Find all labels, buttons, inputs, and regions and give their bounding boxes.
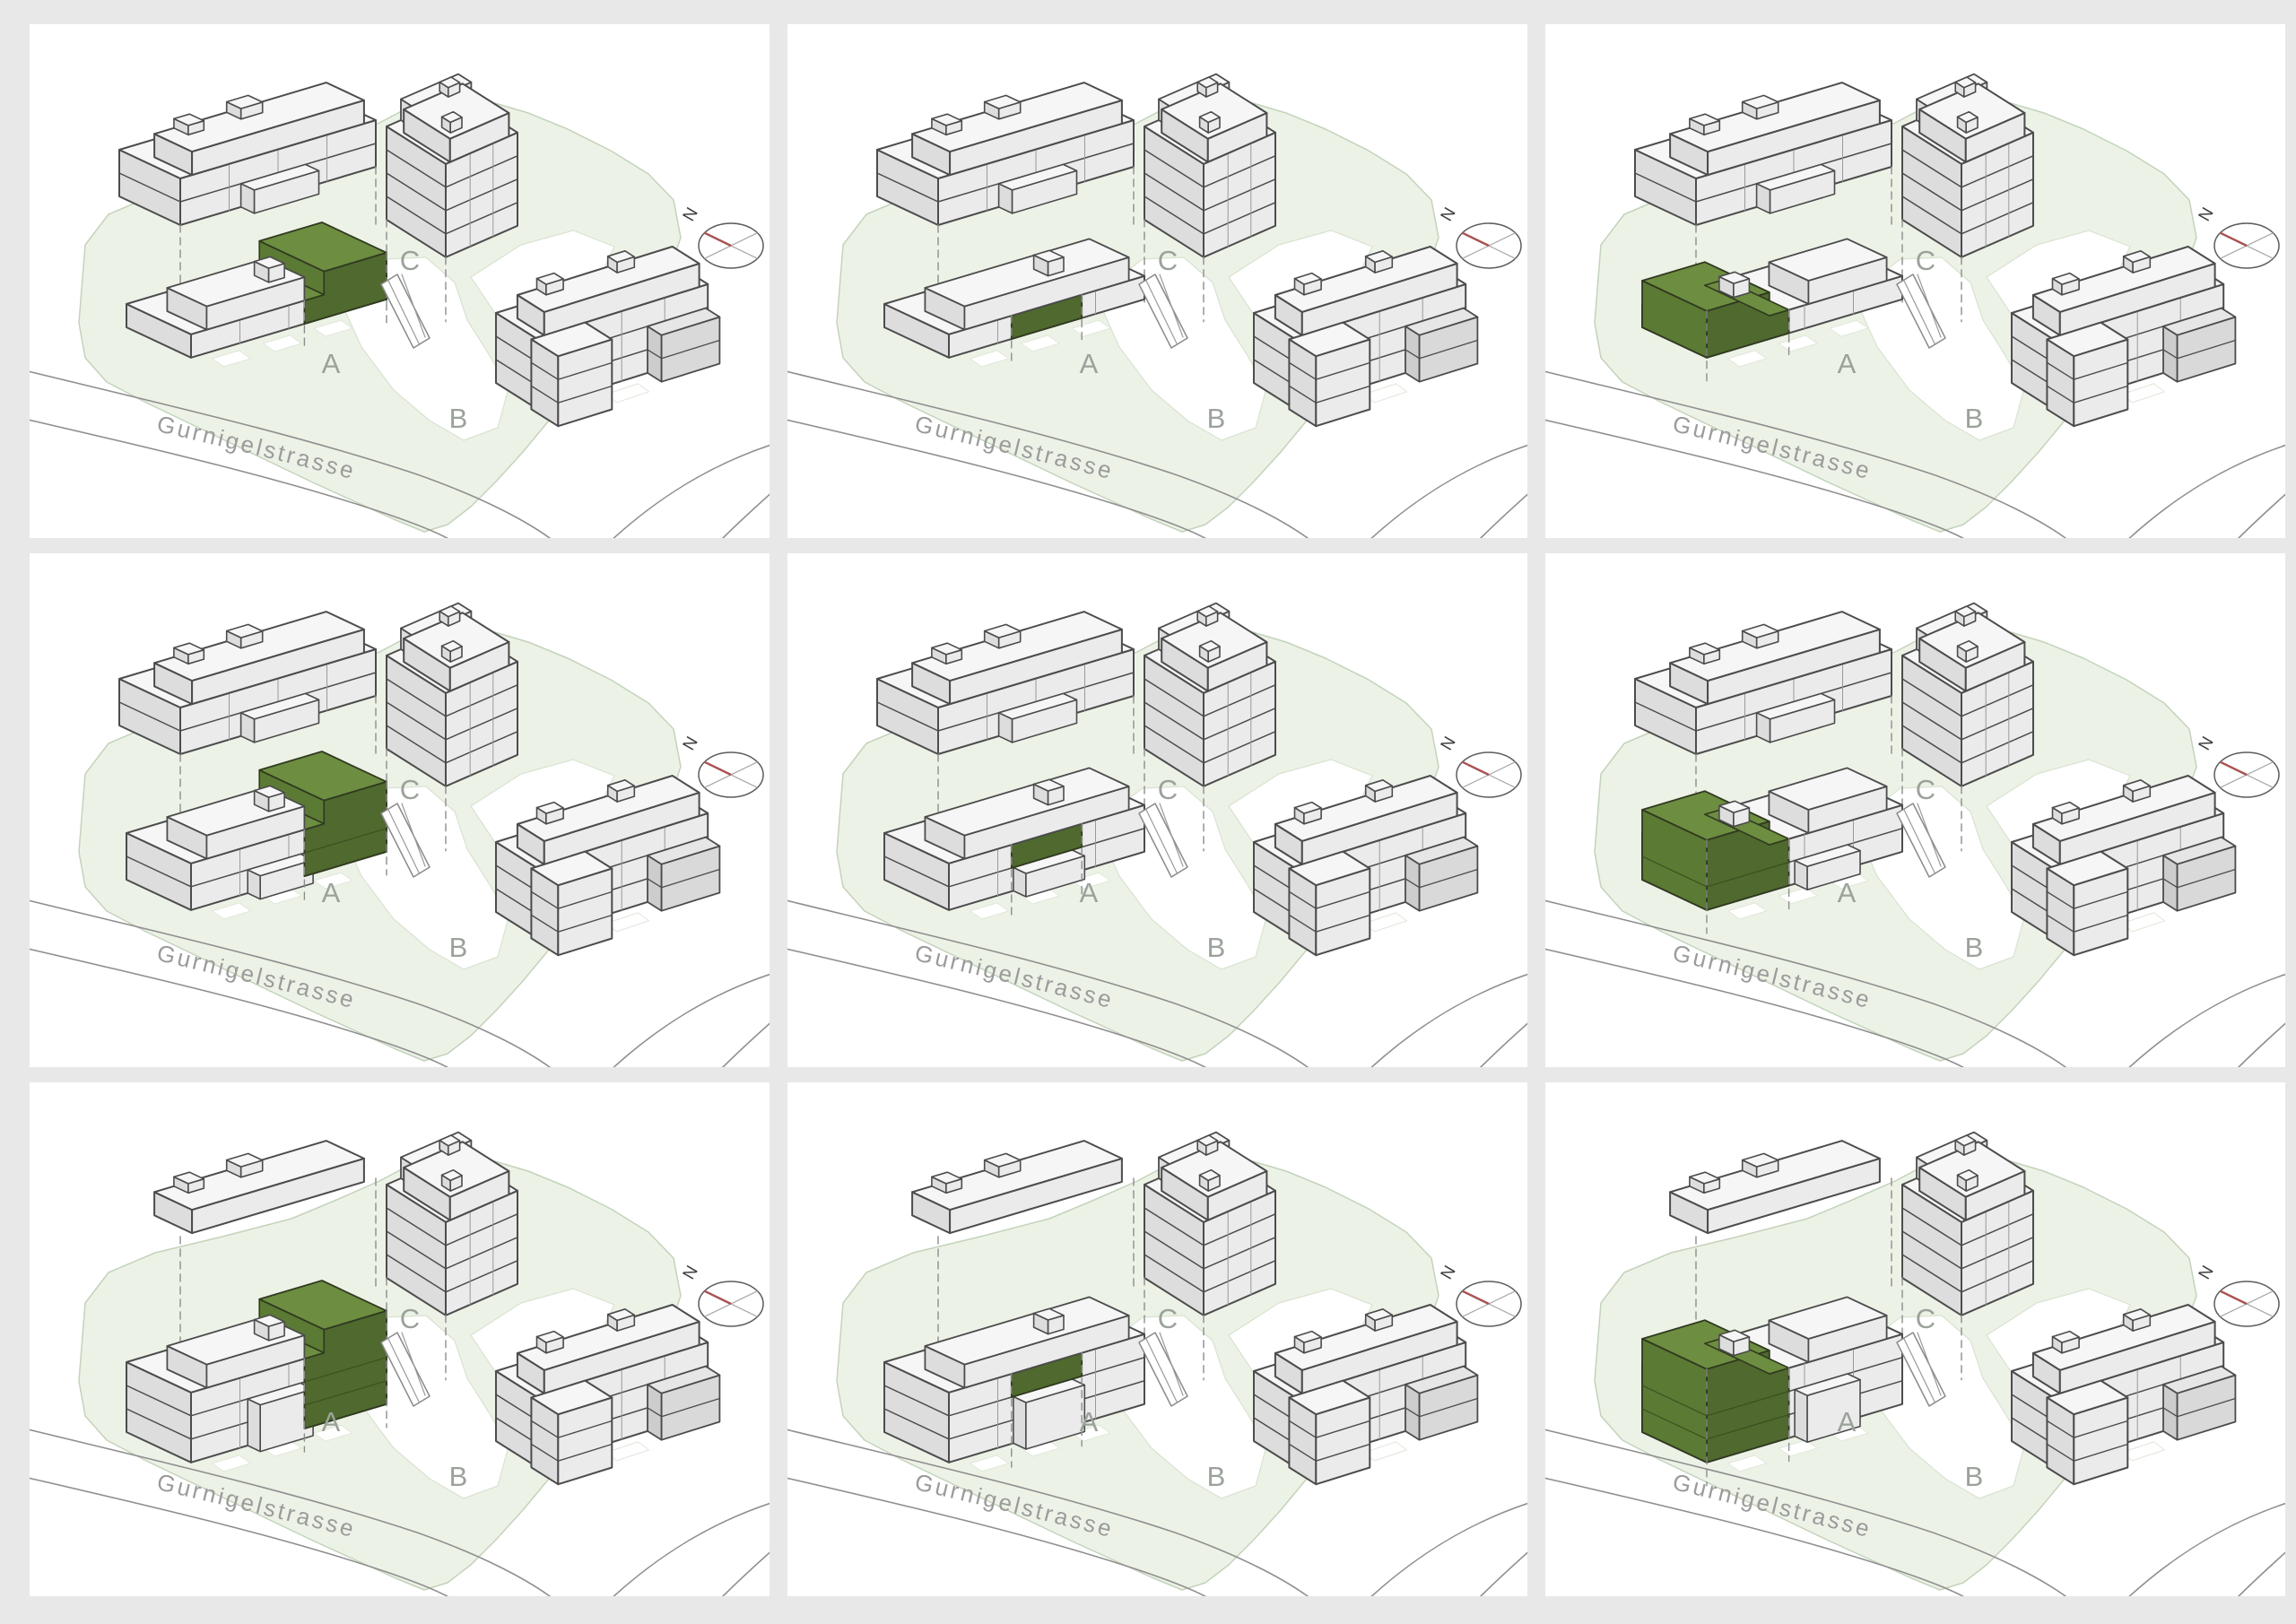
- compass-north-label: N: [1438, 734, 1460, 753]
- building-label-b: B: [449, 403, 468, 434]
- building-label-b: B: [1965, 403, 1984, 434]
- building-label-c: C: [1158, 1303, 1178, 1334]
- building-label-c: C: [1158, 245, 1178, 276]
- street-corner-road: [2125, 1502, 2285, 1596]
- building-label-a: A: [1080, 348, 1099, 379]
- building-label-b: B: [1207, 403, 1226, 434]
- site-axon-diagram-6: GurnigelstrasseABCN: [1545, 553, 2285, 1067]
- building-label-b: B: [1965, 932, 1984, 963]
- building-label-a: A: [1838, 877, 1857, 908]
- building-label-c: C: [1158, 774, 1178, 805]
- building-label-b: B: [1207, 932, 1226, 963]
- diagram-grid: GurnigelstrasseABCN GurnigelstrasseABCN …: [30, 24, 2285, 1596]
- site-axon-diagram-1: GurnigelstrasseABCN: [30, 24, 770, 538]
- building-label-c: C: [400, 774, 420, 805]
- compass-north-label: N: [680, 734, 702, 753]
- site-axon-diagram-7: GurnigelstrasseABCN: [30, 1082, 770, 1596]
- unit-location-panel-6: GurnigelstrasseABCN: [1545, 553, 2285, 1067]
- building-label-a: A: [322, 877, 341, 908]
- building-label-a: A: [322, 1406, 341, 1437]
- street-corner-road: [1367, 1502, 1527, 1596]
- street-corner-road: [609, 973, 770, 1067]
- compass-north-label: N: [2196, 1263, 2218, 1282]
- building-label-a: A: [322, 348, 341, 379]
- building-label-a: A: [1838, 1406, 1857, 1437]
- building-label-c: C: [1916, 1303, 1935, 1334]
- building-label-a: A: [1080, 1406, 1099, 1437]
- site-axon-diagram-5: GurnigelstrasseABCN: [787, 553, 1527, 1067]
- compass-north-label: N: [1438, 204, 1460, 224]
- site-axon-diagram-2: GurnigelstrasseABCN: [787, 24, 1527, 538]
- street-corner-road: [2125, 444, 2285, 538]
- compass-north-label: N: [680, 1263, 702, 1282]
- site-axon-diagram-8: GurnigelstrasseABCN: [787, 1082, 1527, 1596]
- street-corner-road: [2125, 973, 2285, 1067]
- site-axon-diagram-9: GurnigelstrasseABCN: [1545, 1082, 2285, 1596]
- unit-location-panel-7: GurnigelstrasseABCN: [30, 1082, 770, 1596]
- compass-north-label: N: [1438, 1263, 1460, 1282]
- street-corner-road: [1367, 973, 1527, 1067]
- site-axon-diagram-4: GurnigelstrasseABCN: [30, 553, 770, 1067]
- building-label-a: A: [1838, 348, 1857, 379]
- unit-location-panel-3: GurnigelstrasseABCN: [1545, 24, 2285, 538]
- unit-location-panel-1: GurnigelstrasseABCN: [30, 24, 770, 538]
- unit-location-panel-2: GurnigelstrasseABCN: [787, 24, 1527, 538]
- unit-location-panel-4: GurnigelstrasseABCN: [30, 553, 770, 1067]
- compass-north-label: N: [2196, 734, 2218, 753]
- compass-north-label: N: [2196, 204, 2218, 224]
- building-label-c: C: [400, 1303, 420, 1334]
- street-corner-road: [609, 1502, 770, 1596]
- building-label-b: B: [449, 932, 468, 963]
- building-label-c: C: [1916, 245, 1935, 276]
- building-label-c: C: [400, 245, 420, 276]
- site-axon-diagram-3: GurnigelstrasseABCN: [1545, 24, 2285, 538]
- street-corner-road: [609, 444, 770, 538]
- building-label-b: B: [1207, 1461, 1226, 1492]
- building-label-a: A: [1080, 877, 1099, 908]
- unit-location-panel-8: GurnigelstrasseABCN: [787, 1082, 1527, 1596]
- unit-location-panel-5: GurnigelstrasseABCN: [787, 553, 1527, 1067]
- building-label-b: B: [449, 1461, 468, 1492]
- unit-location-panel-9: GurnigelstrasseABCN: [1545, 1082, 2285, 1596]
- building-label-c: C: [1916, 774, 1935, 805]
- compass-north-label: N: [680, 204, 702, 224]
- street-corner-road: [1367, 444, 1527, 538]
- building-label-b: B: [1965, 1461, 1984, 1492]
